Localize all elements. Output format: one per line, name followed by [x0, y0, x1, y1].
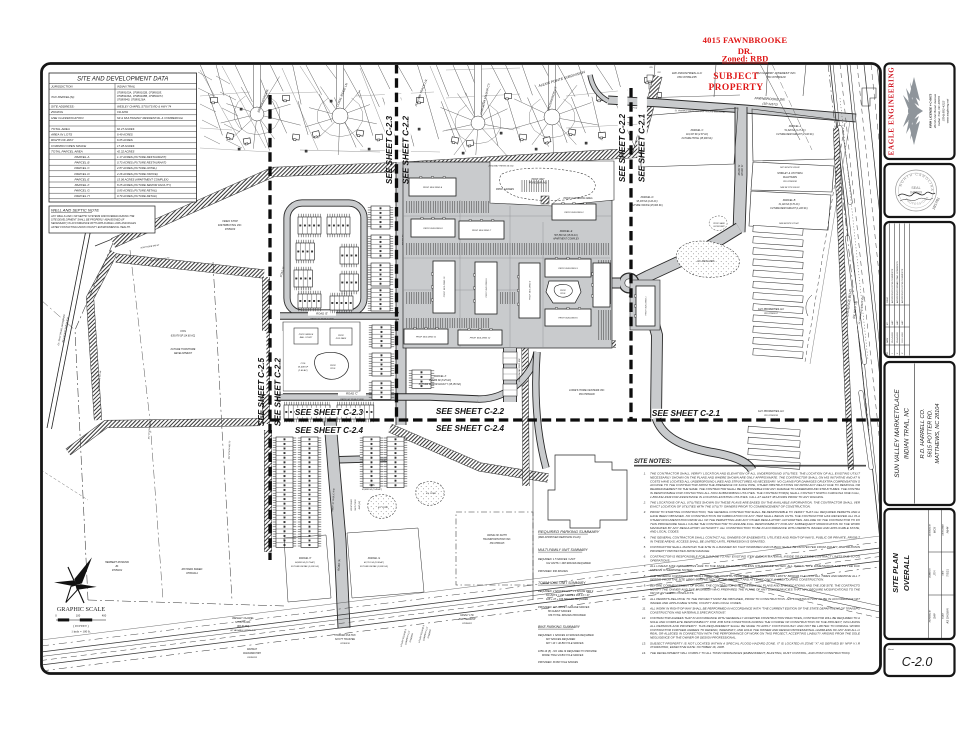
- svg-text:INDIAN TRAIL, NC: INDIAN TRAIL, NC: [905, 407, 911, 459]
- svg-text:C-2.0: C-2.0: [902, 655, 933, 669]
- svg-text:FUTURE RETAIL (5,000 SF.): FUTURE RETAIL (5,000 SF.): [291, 565, 319, 568]
- svg-text:336 TOTAL SPACES PROVIDED: 336 TOTAL SPACES PROVIDED: [548, 613, 586, 617]
- svg-text:PROVIDED: 168 DRIVE / GARAGE S: PROVIDED: 168 DRIVE / GARAGE SPACES: [538, 605, 590, 609]
- svg-text:PID 07089118: PID 07089118: [764, 415, 779, 417]
- svg-text:PARCEL B: PARCEL B: [74, 161, 89, 165]
- svg-text:PROP. BUILDING 5: PROP. BUILDING 5: [486, 278, 488, 298]
- svg-text:(FKA MATTHEWS BLVD): (FKA MATTHEWS BLVD): [489, 165, 514, 168]
- svg-text:COS: COS: [180, 329, 186, 333]
- svg-text:REQUIRED: 2 SPACES/UNIT + 1: REQUIRED: 2 SPACES/UNIT + 1 SPACE PER 4: [538, 589, 594, 593]
- svg-text:1-800-632-4949 FOR ASSISTANCE: 1-800-632-4949 FOR ASSISTANCE IN LOCATIN…: [650, 495, 824, 499]
- svg-text:PROP. BUILDING 2: PROP. BUILDING 2: [564, 212, 584, 214]
- svg-text:(SR #2572): (SR #2572): [762, 102, 778, 107]
- svg-text:TAX PARCEL(S):: TAX PARCEL(S):: [51, 95, 75, 99]
- svg-text:312 UNITS = 468 SPACES REQUIRE: 312 UNITS = 468 SPACES REQUIRED: [546, 561, 591, 565]
- svg-text:14.: 14.: [642, 651, 646, 655]
- svg-text:0.79 ACRES (FUTURE RETAIL): 0.79 ACRES (FUTURE RETAIL): [117, 194, 157, 198]
- svg-text:PARTNERSHIP: PARTNERSHIP: [459, 618, 476, 621]
- svg-text:PROP.: PROP.: [338, 335, 344, 337]
- svg-text:POOL: POOL: [330, 368, 336, 370]
- svg-text:8.: 8.: [644, 574, 647, 578]
- svg-text:DOG PARK: DOG PARK: [336, 337, 347, 340]
- svg-text:PID 07089115: PID 07089115: [490, 543, 505, 545]
- svg-text:SF & MULTIFAMILY RESIDENTIAL &: SF & MULTIFAMILY RESIDENTIAL & COMMERCIA…: [117, 116, 184, 120]
- svg-text:EX. WETLANDS: EX. WETLANDS: [697, 260, 715, 263]
- svg-text:NO.: NO.: [887, 351, 889, 355]
- svg-text:FILTER BMP: FILTER BMP: [714, 226, 726, 228]
- svg-text:ADDRESSED UCPW COMMENTS: ADDRESSED UCPW COMMENTS: [891, 268, 894, 304]
- svg-text:15.06 ACRES (APARTMENT COMPLE: 15.06 ACRES (APARTMENT COMPLEX): [117, 177, 168, 181]
- svg-text:SITE ADDRESS:: SITE ADDRESS:: [51, 105, 75, 109]
- svg-text:12.: 12.: [642, 616, 646, 620]
- svg-text:PROPERTY PROTECTED FROM DAMAG: PROPERTY PROTECTED FROM DAMAGE.: [650, 549, 710, 553]
- svg-text:AREA IN LOTS: AREA IN LOTS: [50, 133, 73, 137]
- svg-text:PROP. BUILDING 11: PROP. BUILDING 11: [416, 337, 437, 339]
- svg-text:ANY WELLS AND / OR SEPTIC SYST: ANY WELLS AND / OR SEPTIC SYSTEMS DISCOV…: [50, 214, 135, 218]
- svg-text:SCALE: SCALE: [942, 612, 945, 619]
- svg-text:REQUIRED: 1.5 SPACES / UNIT: REQUIRED: 1.5 SPACES / UNIT: [538, 557, 576, 561]
- svg-text:17.48 ACRES: 17.48 ACRES: [117, 144, 134, 148]
- svg-text:PROP. GARDEN: PROP. GARDEN: [496, 188, 514, 191]
- svg-text:AS SHOWN: AS SHOWN: [946, 607, 950, 624]
- svg-text:1 inch = 100 ft.: 1 inch = 100 ft.: [71, 630, 91, 634]
- svg-text:ADDRESSED INDIAN TRAIL COMMENT: ADDRESSED INDIAN TRAIL COMMENTS: [896, 261, 899, 304]
- svg-text:62.47 ACRES: 62.47 ACRES: [117, 127, 134, 131]
- svg-text:MALPHURS: MALPHURS: [783, 176, 797, 179]
- svg-text:ZONING: ZONING: [50, 110, 64, 114]
- svg-text:8.25 ACRES (FUTURE SENIOR FAC: 8.25 ACRES (FUTURE SENIOR FACILITY): [117, 183, 171, 187]
- svg-text:PROP.: PROP.: [330, 365, 336, 367]
- svg-text:SEE SHEET C-2.1: SEE SHEET C-2.1: [652, 409, 721, 418]
- svg-text:09-24-2021: 09-24-2021: [896, 331, 899, 343]
- svg-text:COMMON OPEN SPACE: COMMON OPEN SPACE: [51, 144, 87, 148]
- svg-text:(1.45 AC): (1.45 AC): [298, 369, 308, 372]
- svg-text:PARCEL E: PARCEL E: [560, 229, 573, 233]
- svg-text:PARCEL C: PARCEL C: [691, 128, 704, 132]
- svg-text:100: 100: [76, 614, 81, 618]
- svg-text:98,238 SF (2.26 AC): 98,238 SF (2.26 AC): [637, 200, 658, 203]
- svg-text:POOL: POOL: [560, 293, 566, 295]
- svg-text:HOWARD PULTON: HOWARD PULTON: [335, 634, 356, 637]
- svg-text:PROP. BUILDING 3: PROP. BUILDING 3: [529, 280, 531, 300]
- svg-text:635,878 SF (14.60 AC): 635,878 SF (14.60 AC): [171, 335, 196, 338]
- svg-text:KAP: KAP: [896, 320, 899, 325]
- svg-text:SAP: SAP: [933, 613, 937, 619]
- svg-text:JURISDICTION: JURISDICTION: [51, 85, 73, 89]
- svg-text:1.17 ACRES (FUTURE RESTAURANT: 1.17 ACRES (FUTURE RESTAURANT): [117, 155, 166, 159]
- svg-text:PROP. SAND: PROP. SAND: [713, 222, 725, 225]
- svg-text:R.D. HARRELL CO.: R.D. HARRELL CO.: [920, 409, 926, 459]
- svg-text:OR OF ANY FIELD CONFLICTS.: OR OF ANY FIELD CONFLICTS.: [650, 591, 694, 595]
- svg-text:11.: 11.: [642, 607, 646, 611]
- svg-text:STOUTS RD.: STOUTS RD.: [235, 620, 251, 624]
- svg-text:SEE SHEET C-2.1: SEE SHEET C-2.1: [638, 113, 647, 182]
- svg-text:6.: 6.: [644, 555, 647, 559]
- svg-text:CONTRACTOR IS RESPONSIBLE FOR: CONTRACTOR IS RESPONSIBLE FOR DAMAGE TO …: [650, 555, 861, 559]
- svg-text:DRAWN BY: DRAWN BY: [929, 567, 932, 577]
- svg-text:PROP. BUILDING 1: PROP. BUILDING 1: [645, 296, 647, 316]
- svg-text:FAMILY LTD: FAMILY LTD: [460, 614, 473, 617]
- svg-text:CONSTRUCTION AND MATERIALS SP: CONSTRUCTION AND MATERIALS SPECIFICATION…: [650, 610, 727, 614]
- svg-text:THE DEVELOPMENT WILL COMPLY TO: THE DEVELOPMENT WILL COMPLY TO ALL TOWN …: [650, 651, 851, 655]
- svg-text:DESIGNED BY: DESIGNED BY: [930, 523, 932, 536]
- svg-text:KAP: KAP: [901, 320, 904, 325]
- svg-text:SEAL: SEAL: [911, 186, 920, 190]
- svg-text:SEE SHEET C-2.3: SEE SHEET C-2.3: [385, 115, 394, 184]
- svg-text:5615 POTTER RD.: 5615 POTTER RD.: [928, 410, 934, 458]
- svg-text:SHIRLEY & VICTORIA: SHIRLEY & VICTORIA: [777, 172, 803, 175]
- svg-text:Zoned: RBD: Zoned: RBD: [722, 54, 769, 64]
- svg-text:RAHMAT: RAHMAT: [247, 648, 257, 651]
- svg-text:10-11-2021: 10-11-2021: [902, 331, 904, 343]
- svg-text:(SR #1377): (SR #1377): [237, 625, 249, 628]
- svg-text:07089116: 07089116: [340, 643, 350, 645]
- svg-text:PARCEL F: PARCEL F: [434, 374, 447, 378]
- svg-text:JR.: JR.: [115, 565, 119, 568]
- svg-text:PROVIDED: 36 BICYCLE SPACES: PROVIDED: 36 BICYCLE SPACES: [538, 660, 578, 664]
- svg-text:07089102: 07089102: [112, 570, 123, 572]
- svg-text:BALL COURT: BALL COURT: [300, 336, 313, 339]
- svg-text:PARCEL A: PARCEL A: [789, 124, 802, 128]
- svg-text:AFTER CONTACTING UNION COUNTY: AFTER CONTACTING UNION COUNTY ENVIRONMEN…: [50, 225, 131, 229]
- svg-text:PARCEL G: PARCEL G: [74, 189, 90, 193]
- svg-text:SEE SHEET C-2.4: SEE SHEET C-2.4: [436, 424, 505, 433]
- svg-text:MORE THAN 24 BICYCLE SPACES: MORE THAN 24 BICYCLE SPACES: [542, 653, 584, 657]
- svg-text:HERBERT ROSKIND: HERBERT ROSKIND: [105, 561, 129, 564]
- svg-text:WET POND: WET POND: [355, 499, 357, 510]
- svg-text:DEVELOPMENT: DEVELOPMENT: [174, 352, 193, 355]
- svg-text:PARCEL C: PARCEL C: [74, 166, 90, 170]
- svg-text:SCOTT TRUSTEE: SCOTT TRUSTEE: [335, 638, 355, 641]
- svg-text:JOB NUMBER: JOB NUMBER: [943, 523, 945, 535]
- svg-text:APARTMENT COMPLEX: APARTMENT COMPLEX: [552, 238, 579, 241]
- svg-text:ISSUED AND APPLICABLE STATE,: ISSUED AND APPLICABLE STATE, COUNTY AND …: [650, 601, 742, 605]
- svg-text:MULTI-FAMILY UNIT SUMMARY: MULTI-FAMILY UNIT SUMMARY: [538, 548, 588, 552]
- svg-text:2.87 ACRES (FUTURE HOTEL): 2.87 ACRES (FUTURE HOTEL): [116, 166, 157, 170]
- svg-text:SEE SHEET C-2.3: SEE SHEET C-2.3: [295, 408, 364, 417]
- svg-text:INDIAN TRAIL: INDIAN TRAIL: [117, 85, 136, 89]
- svg-text:42,751 SF (0.98 AC): 42,751 SF (0.98 AC): [364, 561, 384, 564]
- svg-text:SITE AND DEVELOPMENT DATA: SITE AND DEVELOPMENT DATA: [77, 77, 168, 83]
- svg-text:TOTAL PARCEL AREA: TOTAL PARCEL AREA: [51, 149, 83, 153]
- svg-text:7.: 7.: [644, 564, 647, 568]
- svg-text:42.32 ACRES: 42.32 ACRES: [117, 149, 134, 153]
- svg-text:UNLESS OTHERWISE NOTED.: UNLESS OTHERWISE NOTED.: [650, 568, 693, 572]
- svg-text:SEE SHEET C-2.2: SEE SHEET C-2.2: [402, 115, 411, 184]
- svg-text:ISSUE: ISSUE: [887, 296, 889, 303]
- svg-text:N87°42'56"W 209.36': N87°42'56"W 209.36': [780, 166, 800, 169]
- svg-text:FUTURE OFFICE (45,000 SF.): FUTURE OFFICE (45,000 SF.): [631, 204, 663, 207]
- svg-text:ROAD 'G': ROAD 'G': [738, 164, 741, 175]
- svg-text:DATE: DATE: [942, 570, 945, 575]
- svg-text:667 SPACES REQUIRED: 667 SPACES REQUIRED: [546, 637, 575, 641]
- svg-text:SEE SHEET C-2.5: SEE SHEET C-2.5: [257, 357, 266, 426]
- svg-text:84 UNITS = 198 SPACES 168.: 84 UNITS = 198 SPACES 168.14 = 47: [546, 593, 590, 597]
- svg-text:FUTURE RESTAURANT (1,220 SF.): FUTURE RESTAURANT (1,220 SF.): [770, 207, 807, 210]
- svg-text:60' VARIABLE WIDTH R/W: 60' VARIABLE WIDTH R/W: [230, 629, 256, 632]
- svg-text:TRANSPORTATION INC.: TRANSPORTATION INC.: [483, 538, 512, 541]
- svg-text:1.: 1.: [644, 472, 647, 476]
- svg-text:PARCEL E: PARCEL E: [74, 177, 90, 181]
- svg-text:07089109: 07089109: [225, 229, 236, 231]
- svg-text:DISTRIBUTING INC.: DISTRIBUTING INC.: [218, 223, 242, 227]
- svg-text:CD-MXD: CD-MXD: [117, 110, 128, 114]
- svg-text:PROP. BUILDING 9: PROP. BUILDING 9: [558, 268, 578, 270]
- svg-text:PARCEL H: PARCEL H: [74, 194, 90, 198]
- svg-text:GUY PROPERTIES LLC: GUY PROPERTIES LLC: [758, 308, 784, 311]
- svg-text:SUBJECT: SUBJECT: [713, 72, 759, 82]
- svg-text:AND LOCAL CODES.: AND LOCAL CODES.: [649, 530, 679, 534]
- svg-text:MANDATED BY ANY REGULATORY AUT: MANDATED BY ANY REGULATORY AUTHORITY. AL…: [650, 526, 860, 530]
- svg-text:PROPERTY: PROPERTY: [708, 83, 763, 93]
- svg-text:PROP. BUILDING 10: PROP. BUILDING 10: [444, 276, 446, 297]
- svg-text:SITE NOTES:: SITE NOTES:: [634, 459, 672, 465]
- svg-text:R644: R644: [946, 526, 950, 533]
- svg-text:TOWNHOME UNIT SUMMARY: TOWNHOME UNIT SUMMARY: [538, 581, 586, 585]
- svg-text:PROP. BUILDING 12: PROP. BUILDING 12: [470, 338, 491, 340]
- svg-text:NEGLIGENCE OF THE OWNER OR DES: NEGLIGENCE OF THE OWNER OR DESIGN PROFES…: [650, 636, 737, 640]
- svg-text:NECESSARY) IN ACCORDANCE WITH: NECESSARY) IN ACCORDANCE WITH APPLICABLE…: [51, 221, 136, 225]
- svg-text:EX. POND: EX. POND: [426, 493, 436, 495]
- svg-text:GUY PROPERTIES LLC: GUY PROPERTIES LLC: [758, 410, 784, 413]
- svg-text:BMP (#2): BMP (#2): [359, 500, 361, 509]
- svg-text:PROPOSED: PROPOSED: [351, 499, 353, 511]
- svg-text:357,866 SF (8.25 AC): 357,866 SF (8.25 AC): [429, 379, 451, 382]
- svg-text:667 / 10 = 46 BICYCLE SPACES: 667 / 10 = 46 BICYCLE SPACES: [546, 641, 584, 645]
- svg-text:0.85 ACRES (FUTURE RETAIL): 0.85 ACRES (FUTURE RETAIL): [117, 189, 157, 193]
- svg-text:(PER APPROVED REZONING PLAN): (PER APPROVED REZONING PLAN): [538, 536, 581, 539]
- svg-text:2.26 ACRES (FUTURE OFFICE): 2.26 ACRES (FUTURE OFFICE): [116, 172, 158, 176]
- svg-text:3710464700J, EFFECTIVE DATE: O: 3710464700J, EFFECTIVE DATE: OCTOBER 16,…: [650, 645, 725, 649]
- svg-text:VIDEO STOP: VIDEO STOP: [222, 219, 238, 223]
- svg-text:BIKE PARKING SUMMARY: BIKE PARKING SUMMARY: [538, 625, 581, 629]
- svg-text:SITE DEVELOPMENT SHALL BE PROP: SITE DEVELOPMENT SHALL BE PROPERLY ABAND…: [51, 218, 125, 222]
- svg-text:4.: 4.: [644, 535, 647, 539]
- svg-text:LOAD/UNLOAD PROP. R/W: LOAD/UNLOAD PROP. R/W: [518, 358, 521, 381]
- svg-text:09-14-2021: 09-14-2021: [891, 331, 894, 343]
- svg-text:PROP. 50' PUBLIC R/W: PROP. 50' PUBLIC R/W: [340, 399, 364, 401]
- svg-text:PID 07091235: PID 07091235: [677, 75, 697, 79]
- svg-text:RAVANBAKHSH: RAVANBAKHSH: [243, 652, 261, 655]
- svg-text:GRAPHIC SCALE: GRAPHIC SCALE: [57, 606, 106, 613]
- svg-text:PID 07089117: PID 07089117: [764, 313, 779, 315]
- svg-text:8.49 ACRES: 8.49 ACRES: [117, 133, 133, 137]
- svg-text:ROAD 'E': ROAD 'E': [316, 312, 328, 316]
- svg-text:1056.16 (8) - NO USE IS REQUIR: 1056.16 (8) - NO USE IS REQUIRED TO PROV…: [538, 649, 597, 653]
- svg-text:REQUIRED: 1 SPACES 10 SPACES: REQUIRED: 1 SPACES 10 SPACES REQUIRED: [538, 633, 594, 637]
- svg-text:SEE SHEET C-2.2: SEE SHEET C-2.2: [618, 113, 627, 182]
- svg-text:07089121A: 07089121A: [186, 572, 198, 575]
- svg-text:SEE SHEET C-2.2: SEE SHEET C-2.2: [274, 357, 283, 426]
- svg-text:TOTAL AREA: TOTAL AREA: [51, 127, 70, 131]
- svg-text:DRIVE OF FAITH: DRIVE OF FAITH: [487, 534, 507, 537]
- svg-text:DEBRIS FROM THE SITE UPON COM: DEBRIS FROM THE SITE UPON COMPLETION OF …: [650, 578, 824, 582]
- svg-text:FUTURE TOWNHOME: FUTURE TOWNHOME: [171, 348, 196, 351]
- svg-text:PROP. BUILDING 6: PROP. BUILDING 6: [558, 318, 578, 320]
- svg-text:9.: 9.: [644, 583, 647, 587]
- svg-text:EAGLE ENGINEERING: EAGLE ENGINEERING: [888, 67, 896, 156]
- svg-text:31,149 SF (0.70 AC): 31,149 SF (0.70 AC): [779, 203, 800, 206]
- svg-text:10.: 10.: [642, 597, 646, 601]
- svg-text:07089201: 07089201: [462, 623, 473, 625]
- svg-text:N89°06'11"W 206.26': N89°06'11"W 206.26': [780, 187, 800, 189]
- svg-text:REQUIRED PARKING SUMMARY: REQUIRED PARKING SUMMARY: [538, 529, 600, 534]
- svg-text:80 GUEST SPACES: 80 GUEST SPACES: [548, 609, 571, 613]
- svg-text:WESLEY CHAPEL: WESLEY CHAPEL: [232, 616, 254, 620]
- svg-text:ADDRESSED UCPW COMMENTS: ADDRESSED UCPW COMMENTS: [901, 268, 904, 304]
- svg-text:EXACT LOCATION OF UTILITIES W: EXACT LOCATION OF UTILITIES WITH THE UTI…: [650, 505, 811, 509]
- svg-text:RIGHT-OF-WAY: RIGHT-OF-WAY: [51, 138, 74, 142]
- svg-text:FUTURE HOTEL (45,000 SF.): FUTURE HOTEL (45,000 SF.): [682, 137, 713, 140]
- svg-text:34,368 SF (0.79 AC): 34,368 SF (0.79 AC): [295, 561, 315, 564]
- svg-text:PARCEL H: PARCEL H: [299, 557, 311, 560]
- svg-text:PROP. GATHERING AREA: PROP. GATHERING AREA: [564, 197, 593, 200]
- svg-text:LOWE'S HOME CENTERS INC.: LOWE'S HOME CENTERS INC.: [569, 389, 605, 392]
- svg-text:OPERATIONS.: OPERATIONS.: [650, 559, 670, 563]
- svg-text:SUN VALLEY MARKETPLACE: SUN VALLEY MARKETPLACE: [894, 389, 901, 478]
- svg-text:SITE PLAN: SITE PLAN: [891, 553, 900, 593]
- svg-text:EX. POND: EX. POND: [378, 507, 388, 509]
- svg-text:REVIEWED BY: REVIEWED BY: [930, 609, 932, 622]
- svg-text:400: 400: [102, 614, 107, 618]
- svg-text:PARCEL A: PARCEL A: [75, 155, 90, 159]
- svg-text:PARCEL F: PARCEL F: [75, 183, 91, 187]
- svg-text:507,860 SF (15.06 AC): 507,860 SF (15.06 AC): [554, 234, 578, 237]
- svg-text:PROP. BUILDING 7: PROP. BUILDING 7: [472, 230, 492, 232]
- svg-text:07089940, 07089126A: 07089940, 07089126A: [117, 98, 145, 102]
- svg-text:0.73 ACRES (FUTURE RESTAURANT: 0.73 ACRES (FUTURE RESTAURANT): [117, 161, 166, 165]
- svg-text:IN THESE AREAS. ACCESS SHALL B: IN THESE AREAS. ACCESS SHALL BE LIMITED …: [650, 539, 766, 543]
- svg-text:PARCEL D: PARCEL D: [74, 172, 90, 176]
- svg-text:168 + 47 + 336 SPACES REQUIRED: 168 + 47 + 336 SPACES REQUIRED: [546, 597, 588, 601]
- svg-text:83,888 SF (1.45 AC): 83,888 SF (1.45 AC): [362, 488, 382, 491]
- svg-text:SEE SHEET C-2.4: SEE SHEET C-2.4: [295, 426, 364, 435]
- svg-text:PROP. PADDLE: PROP. PADDLE: [299, 333, 314, 336]
- svg-text:MATTHEWS, NC 28104: MATTHEWS, NC 28104: [935, 404, 941, 464]
- svg-text:OVERALL: OVERALL: [902, 555, 911, 592]
- svg-text:4015 FAWNBROOKE: 4015 FAWNBROOKE: [703, 35, 788, 45]
- svg-text:13.: 13.: [642, 641, 646, 645]
- svg-text:Sheet: Sheet: [888, 648, 894, 651]
- svg-text:PARCEL G: PARCEL G: [368, 557, 380, 560]
- svg-text:RICHARD SNEED: RICHARD SNEED: [182, 568, 203, 571]
- svg-text:PID 07089119C: PID 07089119C: [579, 394, 596, 396]
- svg-text:COS: COS: [301, 363, 306, 365]
- svg-text:PROP.: PROP.: [560, 290, 566, 292]
- svg-text:PROP. BUILDING 8: PROP. BUILDING 8: [423, 228, 443, 230]
- svg-text:KAP: KAP: [891, 320, 894, 325]
- svg-text:PROP. BUILDING 4: PROP. BUILDING 4: [423, 186, 443, 189]
- svg-text:PROP. 50' PUBLIC R/W: PROP. 50' PUBLIC R/W: [310, 319, 334, 321]
- svg-text:SEE SHEET C-2.2: SEE SHEET C-2.2: [436, 407, 505, 416]
- svg-text:FUTURE SENIOR FACILITY (45,150: FUTURE SENIOR FACILITY (45,150 SF.): [419, 383, 462, 386]
- svg-text:COS: COS: [369, 484, 375, 487]
- svg-text:5.: 5.: [644, 545, 647, 549]
- svg-text:3.: 3.: [644, 510, 647, 514]
- svg-text:FUTURE RESTAURANT (2,100 SF.): FUTURE RESTAURANT (2,100 SF.): [776, 133, 813, 136]
- svg-text:USE CLASSIFICATION: USE CLASSIFICATION: [51, 116, 84, 120]
- svg-text:6.05 ACRES: 6.05 ACRES: [117, 138, 133, 142]
- svg-text:MCK: MCK: [933, 527, 937, 533]
- svg-text:2.: 2.: [643, 501, 647, 505]
- svg-text:PARCEL B: PARCEL B: [783, 198, 796, 202]
- svg-text:( IN FEET ): ( IN FEET ): [73, 624, 88, 628]
- svg-text:91,449 SF: 91,449 SF: [298, 366, 309, 369]
- svg-text:01089018: 01089018: [247, 657, 258, 659]
- svg-text:119,347 SF (2.87 AC): 119,347 SF (2.87 AC): [686, 133, 708, 136]
- svg-text:WESLEY CHAPEL STOUTS RD & HWY: WESLEY CHAPEL STOUTS RD & HWY 74: [117, 105, 172, 109]
- svg-text:PID 07089120: PID 07089120: [766, 75, 786, 79]
- svg-text:ROAD 'C': ROAD 'C': [346, 392, 358, 396]
- svg-text:WELL AND SEPTIC NOTE: WELL AND SEPTIC NOTE: [51, 208, 99, 213]
- svg-text:PROVIDED: 936 SPACES: PROVIDED: 936 SPACES: [538, 569, 568, 573]
- svg-text:PID 07089110: PID 07089110: [783, 181, 798, 183]
- svg-text:7/5/21: 7/5/21: [946, 569, 950, 577]
- svg-text:FUTURE RETAIL (9,000 SF.): FUTURE RETAIL (9,000 SF.): [360, 565, 388, 568]
- svg-text:PARCEL D: PARCEL D: [641, 195, 654, 199]
- svg-text:www.eagleeng.net: www.eagleeng.net: [946, 99, 950, 124]
- svg-text:N89°43'09"W 270.40': N89°43'09"W 270.40': [779, 222, 799, 225]
- svg-text:DATE: DATE: [886, 337, 889, 343]
